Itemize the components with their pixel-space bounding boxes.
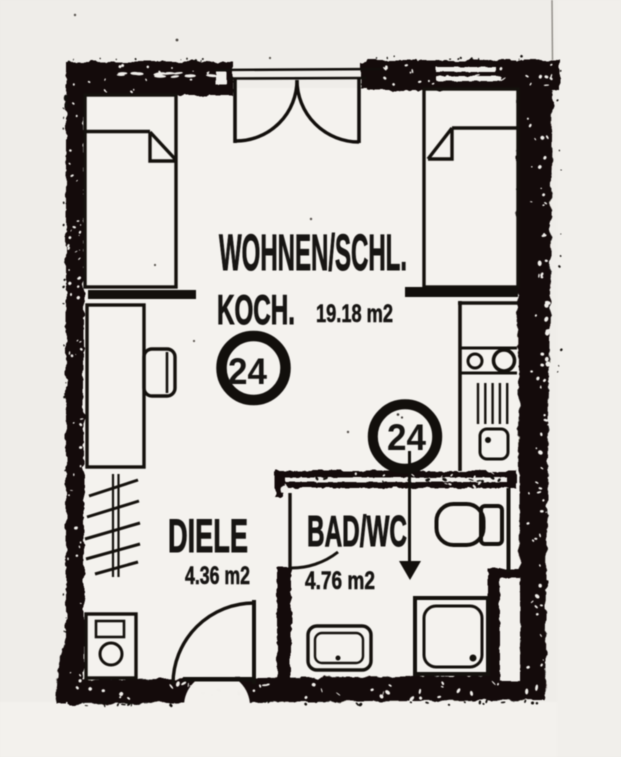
svg-text:DIELE: DIELE (168, 509, 248, 562)
svg-text:KOCH.: KOCH. (217, 286, 295, 333)
svg-text:4.36 m2: 4.36 m2 (185, 562, 250, 590)
svg-text:19.18 m2: 19.18 m2 (316, 300, 393, 328)
svg-text:BAD/WC: BAD/WC (307, 507, 407, 556)
svg-text:24: 24 (387, 417, 426, 458)
svg-text:WOHNEN/SCHL.: WOHNEN/SCHL. (219, 224, 407, 281)
svg-text:4.76 m2: 4.76 m2 (305, 567, 375, 595)
svg-text:24: 24 (228, 351, 267, 392)
